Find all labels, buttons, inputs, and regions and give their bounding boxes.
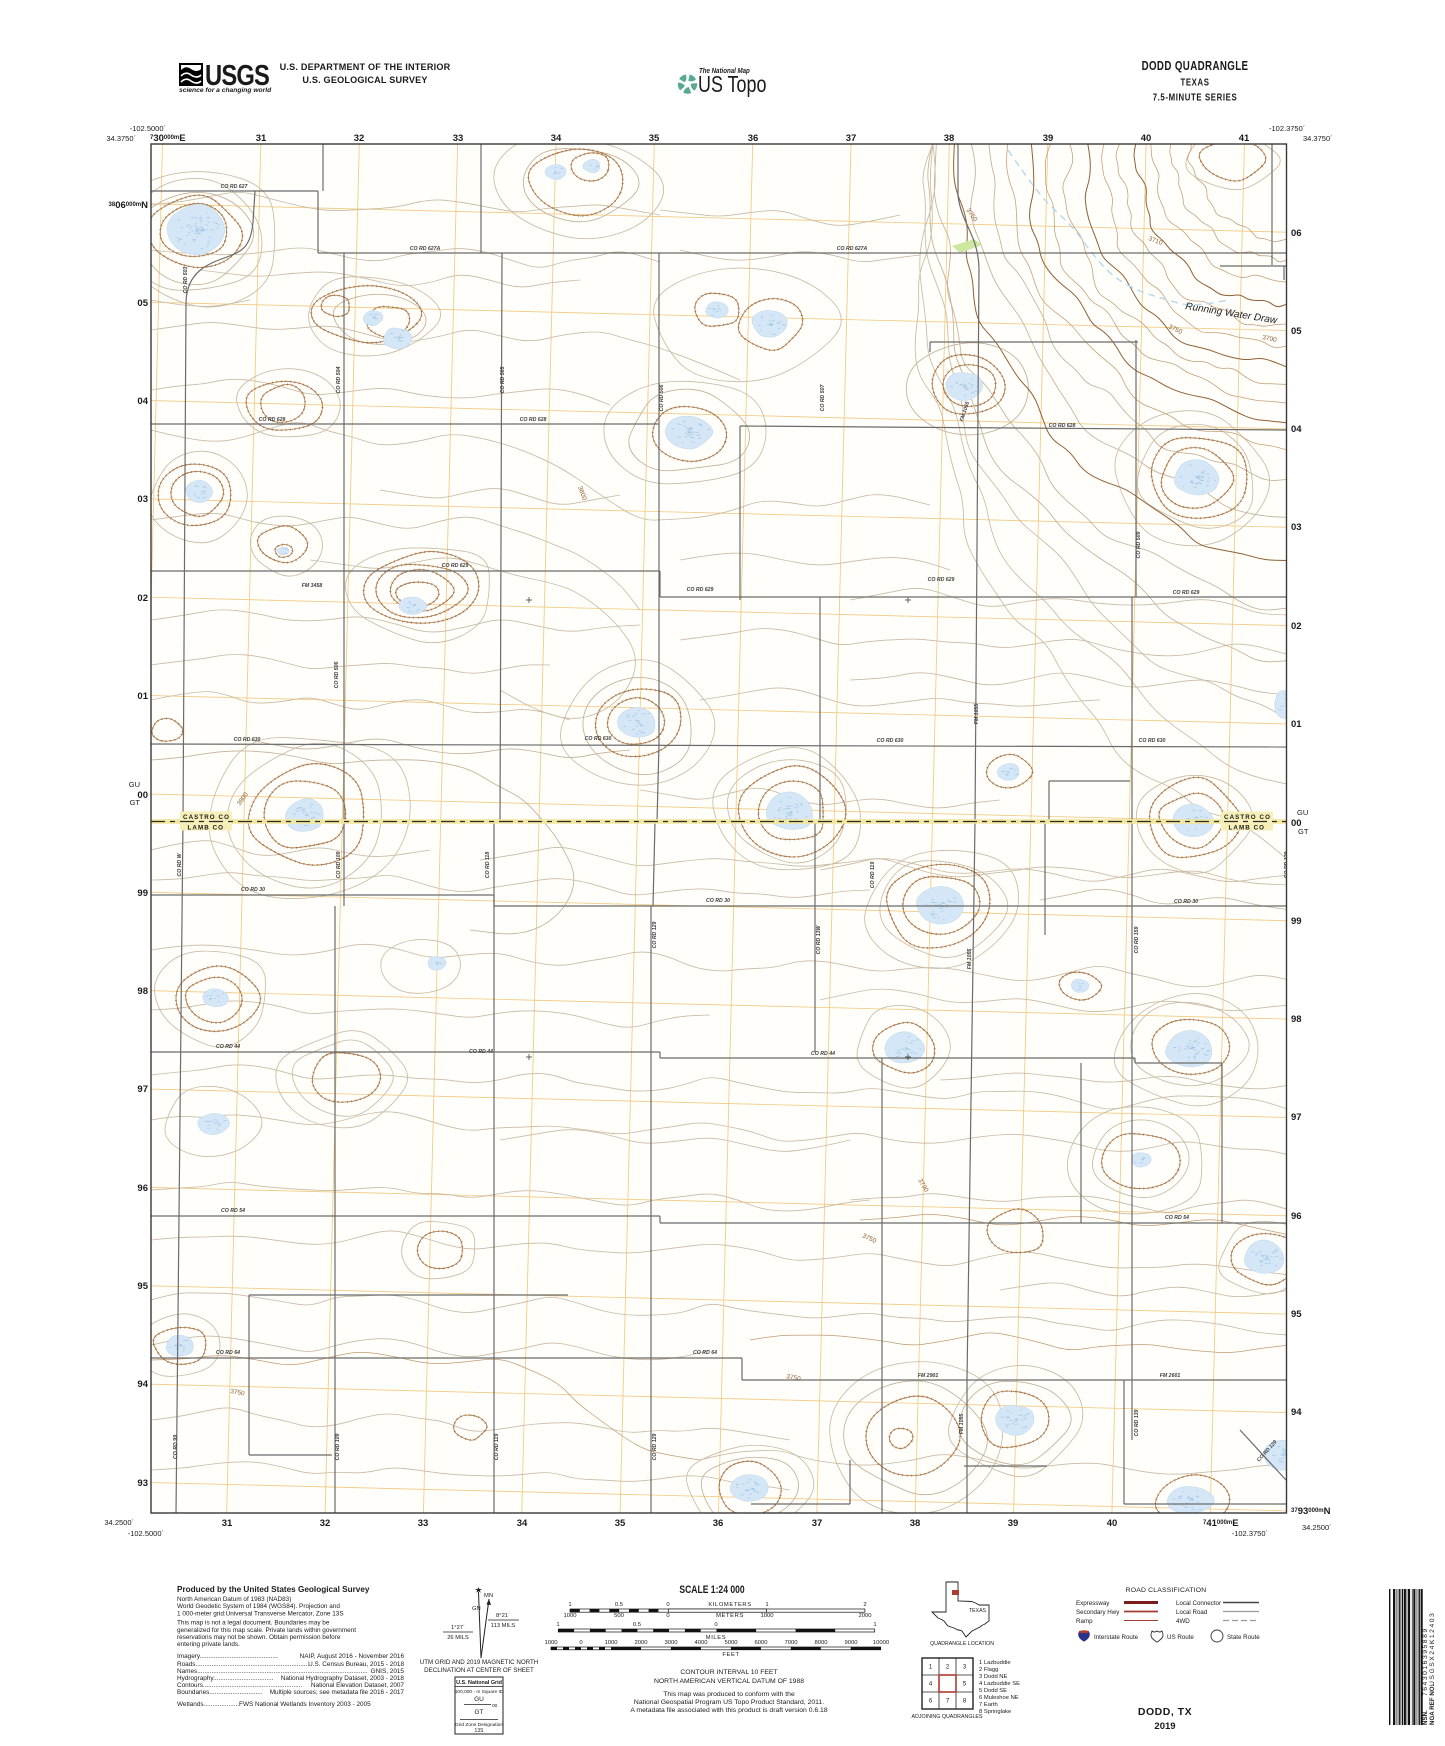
svg-text:37: 37 [812, 1518, 823, 1529]
svg-text:Ramp: Ramp [1076, 1618, 1093, 1625]
svg-text:U.S. GEOLOGICAL SURVEY: U.S. GEOLOGICAL SURVEY [302, 75, 427, 85]
svg-text:Names.........................: Names...................................… [177, 1668, 368, 1675]
svg-text:NORTH AMERICAN VERTICAL DATUM: NORTH AMERICAN VERTICAL DATUM OF 1988 [654, 1678, 804, 1685]
svg-text:95: 95 [1291, 1309, 1302, 1320]
svg-text:FM 1055: FM 1055 [974, 704, 980, 725]
svg-text:8000: 8000 [814, 1640, 828, 1646]
svg-text:Imagery.......................: Imagery.................................… [177, 1653, 278, 1660]
svg-text:02: 02 [137, 593, 148, 604]
svg-text:0.5: 0.5 [615, 1602, 624, 1608]
svg-text:This map is not a legal docume: This map is not a legal document. Bounda… [177, 1620, 330, 1627]
svg-text:36: 36 [748, 133, 759, 144]
svg-text:MILES: MILES [706, 1635, 726, 1641]
svg-text:0: 0 [579, 1640, 583, 1646]
svg-text:LAMB CO: LAMB CO [188, 825, 225, 832]
svg-text:This map was produced to confo: This map was produced to conform with th… [663, 1691, 795, 1698]
svg-text:41: 41 [1239, 133, 1250, 144]
svg-text:94: 94 [137, 1379, 148, 1390]
svg-text:CO RD 629: CO RD 629 [1173, 590, 1200, 596]
svg-text:99: 99 [137, 888, 148, 899]
svg-text:-102.5000´: -102.5000´ [128, 1529, 164, 1538]
svg-text:741000mE: 741000mE [1203, 1518, 1239, 1529]
svg-text:7643016395889: 7643016395889 [1422, 1627, 1429, 1696]
svg-text:CO RD 505: CO RD 505 [500, 366, 506, 393]
svg-text:CO RD 109: CO RD 109 [336, 851, 342, 878]
svg-text:CO RD 54: CO RD 54 [1165, 1215, 1189, 1221]
svg-text:CO RD 44: CO RD 44 [469, 1049, 493, 1055]
svg-text:World Geodetic System of 1984: World Geodetic System of 1984 (WGS84). P… [177, 1603, 340, 1610]
svg-text:96: 96 [137, 1183, 148, 1194]
svg-text:CO RD 503: CO RD 503 [183, 266, 189, 293]
svg-text:CO RD 504: CO RD 504 [336, 366, 342, 393]
svg-text:1 Lazbuddie: 1 Lazbuddie [979, 1660, 1011, 1666]
svg-text:FM 2601: FM 2601 [1160, 1373, 1181, 1379]
svg-text:1000: 1000 [544, 1640, 558, 1646]
svg-text:35: 35 [649, 133, 660, 144]
svg-text:Local Road: Local Road [1176, 1609, 1208, 1616]
svg-text:FM 2901: FM 2901 [918, 1373, 939, 1379]
svg-text:-102.3750´: -102.3750´ [1269, 124, 1305, 133]
svg-text:39: 39 [1008, 1518, 1019, 1529]
svg-text:1 000-meter grid:Universal Tra: 1 000-meter grid:Universal Transverse Me… [177, 1610, 344, 1617]
svg-text:0: 0 [666, 1613, 670, 1619]
svg-text:LAMB CO: LAMB CO [1229, 825, 1266, 832]
svg-text:generalized for this map scale: generalized for this map scale. Private … [177, 1627, 356, 1634]
svg-text:CO RD 129: CO RD 129 [652, 1433, 658, 1460]
svg-text:Local Connector: Local Connector [1176, 1600, 1221, 1607]
svg-text:6: 6 [929, 1699, 933, 1705]
svg-text:GT: GT [130, 798, 141, 807]
svg-text:Roads.........................: Roads...................................… [177, 1661, 309, 1668]
svg-text:8: 8 [963, 1699, 967, 1705]
svg-text:5: 5 [963, 1682, 967, 1688]
svg-text:CO RD 629: CO RD 629 [687, 587, 714, 593]
svg-text:8°21´: 8°21´ [496, 1613, 510, 1619]
svg-text:NGA REF NO.: NGA REF NO. [1429, 1684, 1436, 1725]
svg-text:7000: 7000 [784, 1640, 798, 1646]
svg-text:U.S. National Grid: U.S. National Grid [456, 1680, 502, 1686]
svg-text:1000: 1000 [604, 1640, 618, 1646]
svg-text:MN: MN [484, 1593, 493, 1599]
svg-text:CO RD 629: CO RD 629 [928, 577, 955, 583]
svg-text:10000: 10000 [873, 1640, 890, 1646]
svg-text:CO RD 628: CO RD 628 [520, 417, 547, 423]
svg-text:1: 1 [568, 1602, 571, 1608]
svg-text:6000: 6000 [754, 1640, 768, 1646]
svg-text:3793000mN: 3793000mN [1291, 1506, 1331, 1517]
svg-text:04: 04 [1291, 424, 1302, 435]
svg-text:26 MILS: 26 MILS [447, 1635, 469, 1641]
svg-text:4000: 4000 [694, 1640, 708, 1646]
svg-text:CO RD W: CO RD W [177, 852, 183, 876]
svg-text:1000: 1000 [563, 1613, 577, 1619]
svg-text:FM 1055: FM 1055 [959, 1414, 965, 1435]
svg-text:3000: 3000 [664, 1640, 678, 1646]
svg-text:95: 95 [137, 1281, 148, 1292]
svg-text:40: 40 [1141, 133, 1152, 144]
svg-text:NSN.: NSN. [1422, 1710, 1429, 1725]
svg-text:02: 02 [1291, 621, 1302, 632]
svg-text:CO RD 119: CO RD 119 [494, 1434, 500, 1461]
svg-text:ROAD CLASSIFICATION: ROAD CLASSIFICATION [1126, 1587, 1207, 1594]
svg-text:Boundaries....................: Boundaries.............................. [177, 1689, 263, 1696]
svg-text:39: 39 [1043, 133, 1054, 144]
svg-text:40: 40 [1107, 1518, 1118, 1529]
svg-text:2019: 2019 [1154, 1721, 1175, 1732]
svg-text:1: 1 [556, 1622, 559, 1628]
svg-text:CO RD 509: CO RD 509 [1136, 531, 1142, 558]
svg-text:CASTRO CO: CASTRO CO [1224, 814, 1271, 821]
svg-text:730000mE: 730000mE [150, 133, 186, 144]
svg-text:Wetlands....................FW: Wetlands....................FWS National… [177, 1701, 371, 1708]
svg-text:2: 2 [946, 1665, 950, 1671]
svg-text:CO RD 30: CO RD 30 [1174, 899, 1198, 905]
svg-text:1: 1 [873, 1622, 876, 1628]
svg-text:CO RD 44: CO RD 44 [216, 1044, 240, 1050]
svg-text:CO RD 630: CO RD 630 [877, 738, 904, 744]
svg-text:Hydrography...................: Hydrography.............................… [177, 1675, 274, 1682]
svg-text:CO RD 630: CO RD 630 [1139, 738, 1166, 744]
svg-text:3806000mN: 3806000mN [109, 200, 149, 211]
svg-text:CO RD 629: CO RD 629 [442, 563, 469, 569]
svg-text:4: 4 [929, 1682, 933, 1688]
svg-text:UTM GRID AND 2019 MAGNETIC NOR: UTM GRID AND 2019 MAGNETIC NORTH [420, 1659, 539, 1666]
svg-text:36: 36 [713, 1518, 724, 1529]
svg-text:TEXAS: TEXAS [1180, 77, 1209, 88]
svg-text:entering private lands.: entering private lands. [177, 1641, 240, 1648]
svg-text:reservations may not be shown.: reservations may not be shown. Obtain pe… [177, 1634, 341, 1641]
svg-text:34: 34 [551, 133, 562, 144]
svg-text:6 Muleshoe NE: 6 Muleshoe NE [979, 1695, 1019, 1701]
svg-text:CONTOUR INTERVAL 10 FEET: CONTOUR INTERVAL 10 FEET [680, 1669, 777, 1676]
svg-text:35: 35 [615, 1518, 626, 1529]
svg-text:3: 3 [963, 1665, 967, 1671]
svg-text:CO RD 64: CO RD 64 [693, 1350, 717, 1356]
svg-text:97: 97 [1291, 1112, 1302, 1123]
svg-text:science for a changing world: science for a changing world [179, 87, 272, 94]
svg-text:7: 7 [946, 1699, 950, 1705]
svg-text:CO RD 627A: CO RD 627A [410, 246, 441, 252]
svg-text:CO RD 628: CO RD 628 [259, 417, 286, 423]
svg-text:38: 38 [910, 1518, 921, 1529]
svg-text:U.S. DEPARTMENT OF THE INTERIO: U.S. DEPARTMENT OF THE INTERIOR [280, 62, 451, 72]
svg-text:Contours......................: Contours................................… [177, 1682, 303, 1689]
svg-text:4 Lazbuddie SE: 4 Lazbuddie SE [979, 1681, 1020, 1687]
svg-text:7.5-MINUTE SERIES: 7.5-MINUTE SERIES [1153, 92, 1238, 103]
svg-text:US Route: US Route [1167, 1634, 1194, 1641]
svg-text:00: 00 [492, 1703, 498, 1709]
svg-text:2 Flagg: 2 Flagg [979, 1667, 998, 1673]
svg-text:TEXAS: TEXAS [969, 1608, 987, 1614]
svg-text:GNIS, 2015: GNIS, 2015 [371, 1668, 405, 1675]
svg-text:DODD QUADRANGLE: DODD QUADRANGLE [1142, 60, 1249, 74]
svg-text:FEET: FEET [722, 1652, 739, 1658]
svg-text:5 Dodd SE: 5 Dodd SE [979, 1688, 1007, 1694]
svg-text:GU: GU [129, 780, 140, 789]
svg-text:CO RD 54: CO RD 54 [221, 1208, 245, 1214]
svg-text:US Topo: US Topo [698, 72, 766, 98]
svg-text:0: 0 [714, 1622, 718, 1628]
svg-text:1: 1 [765, 1602, 768, 1608]
svg-text:DODD, TX: DODD, TX [1138, 1706, 1192, 1718]
svg-text:CO RD 627: CO RD 627 [221, 184, 249, 190]
svg-text:37: 37 [846, 133, 857, 144]
svg-text:DECLINATION AT CENTER OF SHEET: DECLINATION AT CENTER OF SHEET [424, 1667, 534, 1674]
svg-text:CO RD 44: CO RD 44 [811, 1051, 835, 1057]
svg-text:34.2500´: 34.2500´ [104, 1518, 134, 1527]
svg-text:CO RD 628: CO RD 628 [1049, 423, 1076, 429]
svg-text:97: 97 [137, 1084, 148, 1095]
svg-text:0.5: 0.5 [633, 1622, 642, 1628]
svg-text:CO RD 99: CO RD 99 [173, 1435, 179, 1459]
svg-text:34.2500´: 34.2500´ [1302, 1523, 1332, 1532]
svg-text:1°27´: 1°27´ [451, 1625, 465, 1631]
svg-text:3 Dodd NE: 3 Dodd NE [979, 1674, 1007, 1680]
svg-text:GT: GT [474, 1709, 483, 1716]
svg-text:8 Springlake: 8 Springlake [979, 1709, 1011, 1715]
svg-text:CO RD 109: CO RD 109 [335, 1433, 341, 1460]
svg-text:03: 03 [1291, 522, 1302, 533]
svg-text:North American Datum of 1983 (: North American Datum of 1983 (NAD83) [177, 1596, 291, 1603]
svg-text:CASTRO CO: CASTRO CO [183, 814, 230, 821]
svg-text:SCALE 1:24 000: SCALE 1:24 000 [679, 1584, 745, 1596]
svg-text:NAIP, August 2016 - November 2: NAIP, August 2016 - November 2016 [300, 1653, 405, 1660]
svg-text:CO RD 64: CO RD 64 [1335, 1352, 1359, 1358]
svg-text:CO RD 139: CO RD 139 [1134, 1409, 1140, 1436]
svg-text:CO RD 627A: CO RD 627A [837, 246, 868, 252]
svg-text:01: 01 [1291, 719, 1302, 730]
svg-text:2000: 2000 [858, 1613, 872, 1619]
svg-text:CO RD 30: CO RD 30 [706, 898, 730, 904]
svg-text:113 MILS: 113 MILS [491, 1623, 516, 1629]
svg-text:34.3750´: 34.3750´ [1303, 134, 1333, 143]
svg-text:500: 500 [614, 1613, 625, 1619]
svg-text:ADJOINING QUADRANGLES: ADJOINING QUADRANGLES [912, 1714, 983, 1720]
svg-text:CO RD 506: CO RD 506 [659, 384, 665, 411]
svg-text:METERS: METERS [716, 1613, 744, 1619]
svg-text:33: 33 [418, 1518, 429, 1529]
svg-text:GU: GU [1297, 808, 1308, 817]
svg-text:CO RD 630: CO RD 630 [234, 737, 261, 743]
svg-text:03: 03 [137, 494, 148, 505]
svg-text:05: 05 [137, 298, 148, 309]
svg-text:Interstate Route: Interstate Route [1094, 1634, 1139, 1641]
svg-text:Multiple sources; see metad: Multiple sources; see metadata file 2016… [270, 1689, 405, 1696]
svg-text:CO RD 30: CO RD 30 [241, 887, 265, 893]
svg-text:05: 05 [1291, 326, 1302, 337]
svg-text:98: 98 [137, 986, 148, 997]
svg-text:National Geospatial Program US: National Geospatial Program US Topo Prod… [634, 1699, 824, 1706]
svg-text:CO RD 507: CO RD 507 [820, 383, 826, 411]
svg-text:CO RD 64: CO RD 64 [216, 1350, 240, 1356]
svg-text:31: 31 [222, 1518, 233, 1529]
svg-text:-102.3750´: -102.3750´ [1232, 1529, 1268, 1538]
svg-text:Secondary Hwy: Secondary Hwy [1076, 1609, 1120, 1616]
svg-text:13S: 13S [475, 1728, 485, 1734]
svg-text:04: 04 [137, 396, 148, 407]
svg-text:CO RD 630: CO RD 630 [585, 736, 612, 742]
svg-text:U.S. Census Bureau, 2015 -: U.S. Census Bureau, 2015 - 2018 [308, 1661, 404, 1668]
svg-text:06: 06 [1291, 228, 1302, 239]
svg-text:4WD: 4WD [1176, 1618, 1190, 1625]
svg-text:QUADRANGLE LOCATION: QUADRANGLE LOCATION [930, 1641, 994, 1647]
svg-text:100,000 - m Square ID: 100,000 - m Square ID [455, 1689, 504, 1695]
svg-text:-102.5000´: -102.5000´ [130, 124, 166, 133]
svg-text:CO RD 118: CO RD 118 [485, 852, 491, 879]
svg-text:GN: GN [472, 1606, 481, 1612]
svg-text:38: 38 [944, 133, 955, 144]
svg-text:State Route: State Route [1227, 1634, 1260, 1641]
svg-text:34.3750´: 34.3750´ [106, 134, 136, 143]
svg-text:5000: 5000 [724, 1640, 738, 1646]
svg-text:99: 99 [1291, 916, 1302, 927]
svg-text:32: 32 [320, 1518, 331, 1529]
svg-text:31: 31 [256, 133, 267, 144]
svg-text:93: 93 [137, 1478, 148, 1489]
svg-text:CO RD 119: CO RD 119 [870, 862, 876, 889]
svg-text:98: 98 [1291, 1014, 1302, 1025]
svg-text:94: 94 [1291, 1407, 1302, 1418]
svg-text:National Hydrography Dataset: National Hydrography Dataset, 2003 - 201… [281, 1675, 405, 1682]
svg-text:Expressway: Expressway [1076, 1600, 1110, 1607]
svg-text:CO RD 159: CO RD 159 [1134, 926, 1140, 953]
svg-text:34: 34 [517, 1518, 528, 1529]
svg-text:9000: 9000 [844, 1640, 858, 1646]
svg-text:01: 01 [137, 691, 148, 702]
svg-text:CO RD 506: CO RD 506 [334, 661, 340, 688]
svg-text:1: 1 [929, 1665, 933, 1671]
svg-text:CO RD 13W: CO RD 13W [816, 924, 822, 954]
svg-text:FM 3458: FM 3458 [302, 583, 323, 589]
svg-text:USGSX24K12403: USGSX24K12403 [1429, 1612, 1436, 1686]
svg-text:2: 2 [863, 1602, 866, 1608]
svg-text:1000: 1000 [760, 1613, 774, 1619]
svg-text:KILOMETERS: KILOMETERS [708, 1602, 751, 1608]
svg-text:33: 33 [453, 133, 464, 144]
svg-text:32: 32 [354, 133, 365, 144]
svg-text:GT: GT [1298, 827, 1309, 836]
svg-text:Produced by the United States: Produced by the United States Geological… [177, 1585, 370, 1594]
svg-text:7 Earth: 7 Earth [979, 1702, 998, 1708]
svg-text:2000: 2000 [634, 1640, 648, 1646]
svg-text:0: 0 [666, 1602, 670, 1608]
svg-text:National Elevation Dataset: National Elevation Dataset, 2007 [311, 1682, 405, 1689]
svg-text:GU: GU [474, 1696, 484, 1703]
svg-text:96: 96 [1291, 1211, 1302, 1222]
svg-text:A metadata file associated wit: A metadata file associated with this pro… [630, 1707, 827, 1714]
svg-text:FM 1055: FM 1055 [967, 949, 973, 970]
svg-text:CO RD 129: CO RD 129 [652, 921, 658, 948]
